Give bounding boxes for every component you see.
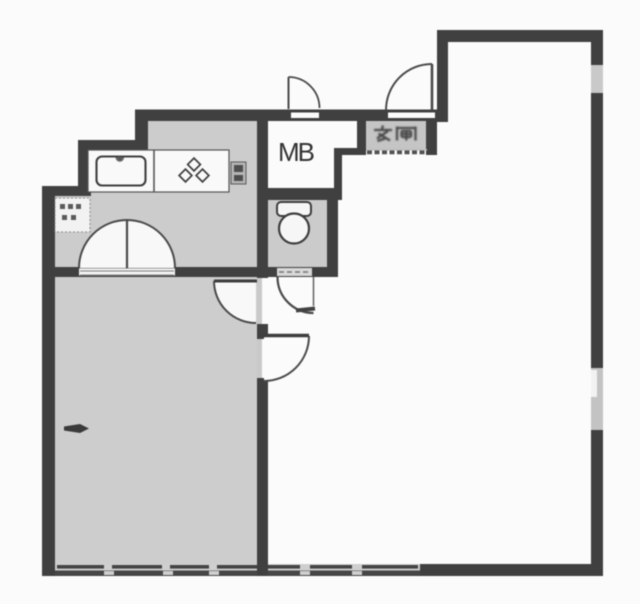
svg-text:MB: MB <box>278 137 314 167</box>
